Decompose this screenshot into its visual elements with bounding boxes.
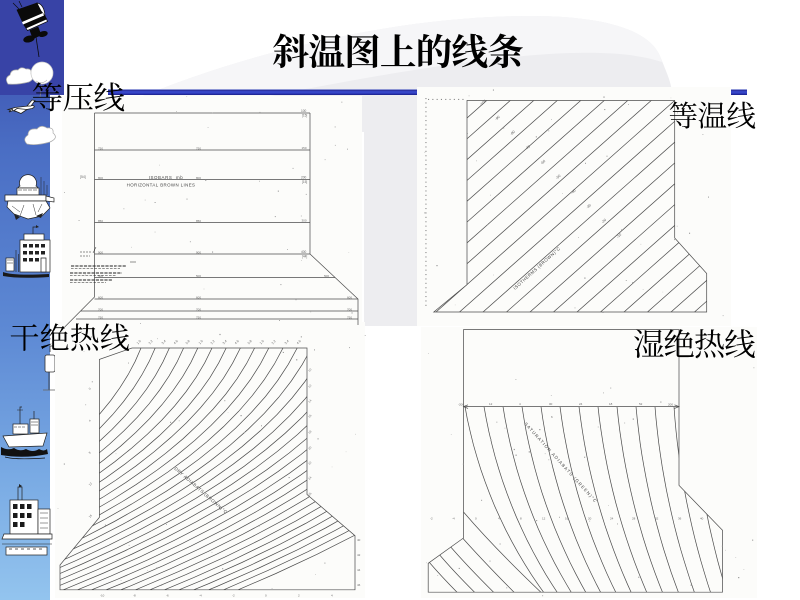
svg-text:750: 750 [98, 315, 103, 319]
svg-text:700: 700 [347, 307, 352, 311]
svg-text:-6: -6 [166, 594, 169, 598]
svg-text:40: 40 [700, 517, 704, 521]
svg-text:900: 900 [196, 250, 201, 254]
svg-text:52: 52 [639, 402, 643, 406]
svg-text:-4: -4 [199, 594, 202, 598]
svg-text:[54]: [54] [80, 175, 86, 179]
svg-text:700: 700 [98, 307, 103, 311]
svg-text:500: 500 [196, 274, 201, 278]
svg-text:800: 800 [196, 176, 201, 180]
svg-text:[44]: [44] [302, 255, 307, 259]
svg-text:16: 16 [565, 517, 569, 521]
svg-text:12: 12 [489, 402, 493, 406]
svg-text:00: 00 [549, 402, 553, 406]
svg-text:24: 24 [579, 402, 583, 406]
svg-text:100: 100 [301, 109, 307, 113]
svg-text:750: 750 [196, 315, 201, 319]
svg-text:-10: -10 [100, 594, 105, 598]
svg-text:-2: -2 [430, 517, 433, 521]
svg-text:750: 750 [347, 315, 352, 319]
svg-text:400: 400 [301, 250, 307, 254]
svg-text:600: 600 [196, 295, 201, 299]
svg-text:40: 40 [357, 538, 361, 542]
svg-text:18: 18 [609, 402, 613, 406]
svg-text:20: 20 [588, 517, 592, 521]
svg-text:800: 800 [98, 176, 103, 180]
svg-text:300: 300 [302, 219, 307, 223]
svg-text:-200: -200 [458, 402, 464, 406]
svg-text:36: 36 [678, 517, 682, 521]
svg-text:600: 600 [347, 295, 352, 299]
svg-text:HORIZONTAL BROWN LINES: HORIZONTAL BROWN LINES [127, 183, 196, 188]
svg-text:600: 600 [98, 295, 103, 299]
svg-text:46: 46 [357, 583, 361, 587]
svg-text:200: 200 [301, 176, 307, 180]
svg-text:44: 44 [357, 568, 361, 572]
svg-text:32: 32 [655, 517, 659, 521]
svg-text:12: 12 [542, 517, 546, 521]
svg-text:[15]: [15] [302, 180, 307, 184]
svg-text:750: 750 [196, 146, 201, 150]
svg-text:700: 700 [196, 307, 201, 311]
svg-text:500: 500 [324, 274, 329, 278]
svg-text:28: 28 [632, 517, 636, 521]
svg-text:42: 42 [357, 553, 361, 557]
svg-text:ISOBARS mb: ISOBARS mb [149, 175, 184, 180]
svg-text:-4: -4 [452, 517, 455, 521]
svg-text:[15]: [15] [302, 114, 307, 118]
svg-text:850: 850 [98, 219, 103, 223]
svg-text:-2: -2 [232, 594, 235, 598]
svg-text:24: 24 [610, 517, 614, 521]
svg-text:-8: -8 [133, 594, 136, 598]
svg-text:150: 150 [302, 146, 307, 150]
svg-text:850: 850 [196, 219, 201, 223]
svg-text:200: 200 [668, 402, 673, 406]
svg-text:900: 900 [98, 250, 103, 254]
svg-text:750: 750 [98, 146, 103, 150]
